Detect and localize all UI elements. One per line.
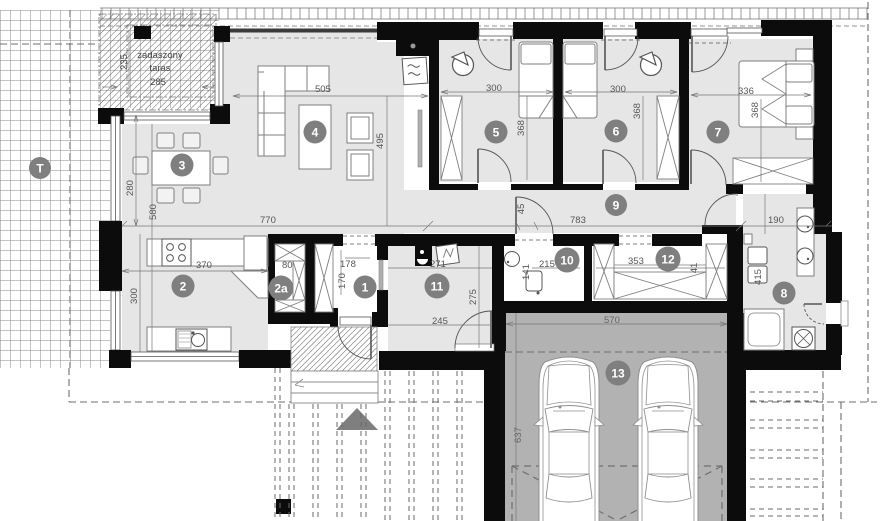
- svg-text:336: 336: [738, 86, 754, 97]
- svg-text:80: 80: [282, 260, 293, 271]
- svg-text:178: 178: [340, 259, 356, 270]
- svg-text:505: 505: [315, 84, 331, 95]
- svg-text:368: 368: [632, 103, 643, 119]
- svg-text:235: 235: [119, 54, 130, 70]
- svg-text:190: 190: [768, 215, 784, 226]
- svg-text:783: 783: [570, 215, 586, 226]
- svg-text:300: 300: [129, 288, 140, 304]
- svg-text:5: 5: [493, 126, 500, 140]
- svg-text:368: 368: [750, 102, 761, 118]
- svg-text:2: 2: [180, 280, 187, 294]
- svg-text:368: 368: [516, 120, 527, 136]
- svg-text:215: 215: [539, 259, 555, 270]
- svg-text:280: 280: [125, 180, 136, 196]
- svg-text:4: 4: [312, 126, 319, 140]
- svg-text:370: 370: [196, 260, 212, 271]
- svg-text:141: 141: [521, 264, 532, 280]
- svg-text:10: 10: [560, 254, 574, 268]
- svg-text:taras: taras: [149, 63, 170, 74]
- svg-text:7: 7: [715, 126, 722, 140]
- svg-text:245: 245: [432, 316, 448, 327]
- svg-text:300: 300: [486, 83, 502, 94]
- svg-text:12: 12: [661, 253, 675, 267]
- svg-text:271: 271: [430, 259, 446, 270]
- svg-text:1: 1: [362, 281, 369, 295]
- svg-text:2a: 2a: [274, 282, 288, 296]
- svg-text:637: 637: [513, 427, 524, 443]
- svg-text:6: 6: [613, 125, 620, 139]
- svg-text:415: 415: [753, 269, 764, 285]
- svg-text:353: 353: [628, 256, 644, 267]
- svg-text:570: 570: [604, 315, 620, 326]
- svg-text:41: 41: [689, 263, 700, 274]
- svg-text:285: 285: [150, 77, 166, 88]
- svg-text:9: 9: [613, 199, 620, 213]
- svg-text:770: 770: [260, 215, 276, 226]
- svg-text:45: 45: [516, 204, 527, 215]
- svg-text:3: 3: [179, 159, 186, 173]
- svg-text:zadaszony: zadaszony: [137, 50, 183, 61]
- svg-text:170: 170: [337, 273, 348, 289]
- svg-text:495: 495: [375, 133, 386, 149]
- svg-text:13: 13: [611, 367, 625, 381]
- svg-text:11: 11: [431, 280, 444, 294]
- svg-text:8: 8: [781, 287, 788, 301]
- svg-text:300: 300: [610, 84, 626, 95]
- svg-text:580: 580: [148, 204, 159, 220]
- svg-text:275: 275: [468, 289, 479, 305]
- svg-text:T: T: [36, 162, 44, 176]
